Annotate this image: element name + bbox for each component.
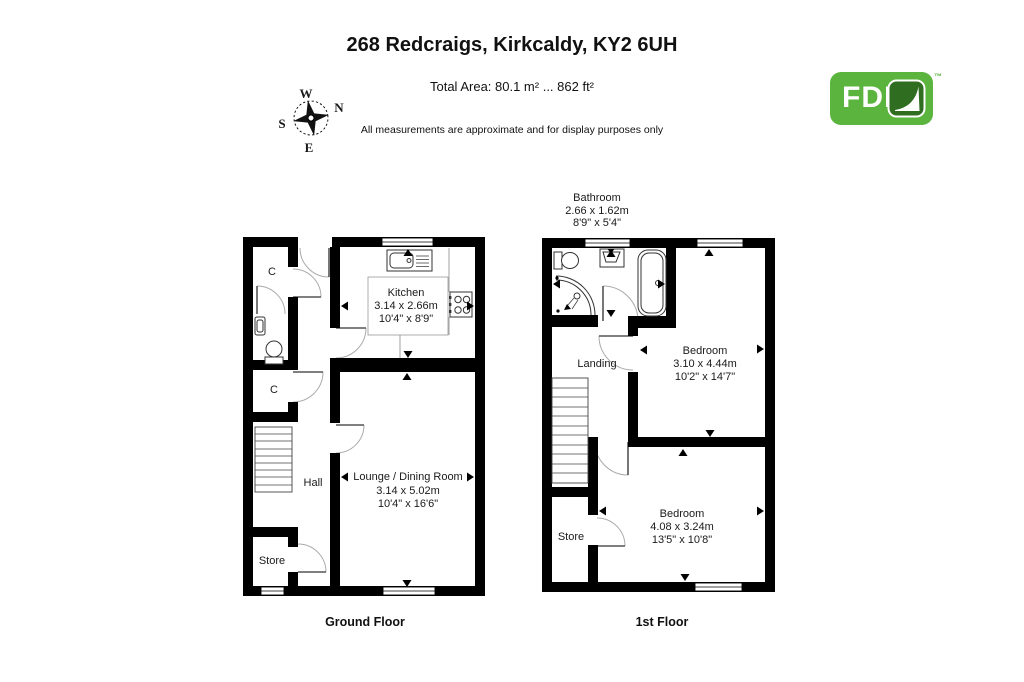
bedroom1-label: Bedroom bbox=[683, 345, 728, 357]
bedroom1-dims-ft: 10'2" x 14'7" bbox=[675, 371, 735, 383]
ground-floor-caption: Ground Floor bbox=[265, 615, 465, 629]
bedroom1-dims-m: 3.10 x 4.44m bbox=[673, 358, 737, 370]
kitchen-dims-m: 3.14 x 2.66m bbox=[374, 300, 438, 312]
landing-label: Landing bbox=[577, 358, 616, 370]
kitchen-label: Kitchen bbox=[388, 287, 425, 299]
first-floor-stairs bbox=[552, 378, 588, 483]
store-label-ground: Store bbox=[259, 555, 285, 567]
bedroom2-label: Bedroom bbox=[660, 508, 705, 520]
closet-label-1: C bbox=[268, 266, 276, 278]
bathroom-toilet bbox=[554, 252, 579, 269]
bathroom-dims-ft: 8'9" x 5'4" bbox=[573, 217, 621, 229]
fdl-logo: FDL bbox=[830, 72, 933, 125]
first-floor-plan: Bathroom 2.66 x 1.62m 8'9" x 5'4" Bedroo… bbox=[542, 185, 775, 597]
ground-floor-doors bbox=[257, 248, 366, 572]
compass-rose-icon: W N S E bbox=[273, 80, 351, 158]
bathroom-label: Bathroom bbox=[573, 192, 621, 204]
kitchen-dims-ft: 10'4" x 8'9" bbox=[379, 313, 433, 325]
compass-south-label: S bbox=[278, 116, 285, 131]
closet-label-2: C bbox=[270, 384, 278, 396]
lounge-dims-m: 3.14 x 5.02m bbox=[376, 485, 440, 497]
lounge-dims-ft: 10'4" x 16'6" bbox=[378, 498, 438, 510]
ground-floor-plan: Kitchen 3.14 x 2.66m 10'4" x 8'9" Lounge… bbox=[243, 237, 485, 600]
bedroom2-dims-m: 4.08 x 3.24m bbox=[650, 521, 714, 533]
lounge-label: Lounge / Dining Room bbox=[353, 471, 462, 483]
bathroom-shower bbox=[555, 276, 595, 315]
hall-label: Hall bbox=[304, 477, 323, 489]
fdl-leaf-icon bbox=[887, 79, 926, 118]
wc-basin bbox=[255, 317, 265, 335]
first-floor-caption: 1st Floor bbox=[562, 615, 762, 629]
store-label-first: Store bbox=[558, 531, 584, 543]
trademark-symbol: ™ bbox=[934, 72, 942, 81]
compass-east-label: E bbox=[305, 140, 314, 155]
disclaimer: All measurements are approximate and for… bbox=[0, 124, 1024, 136]
page-title: 268 Redcraigs, Kirkcaldy, KY2 6UH bbox=[0, 34, 1024, 57]
ground-floor-stairs bbox=[255, 427, 292, 492]
bedroom2-dims-ft: 13'5" x 10'8" bbox=[652, 534, 712, 546]
compass-north-label: N bbox=[334, 100, 344, 115]
compass-west-label: W bbox=[300, 86, 313, 101]
wc-toilet bbox=[265, 341, 283, 364]
bathroom-dims-m: 2.66 x 1.62m bbox=[565, 205, 629, 217]
floorplan-page: 268 Redcraigs, Kirkcaldy, KY2 6UH Total … bbox=[0, 0, 1024, 682]
